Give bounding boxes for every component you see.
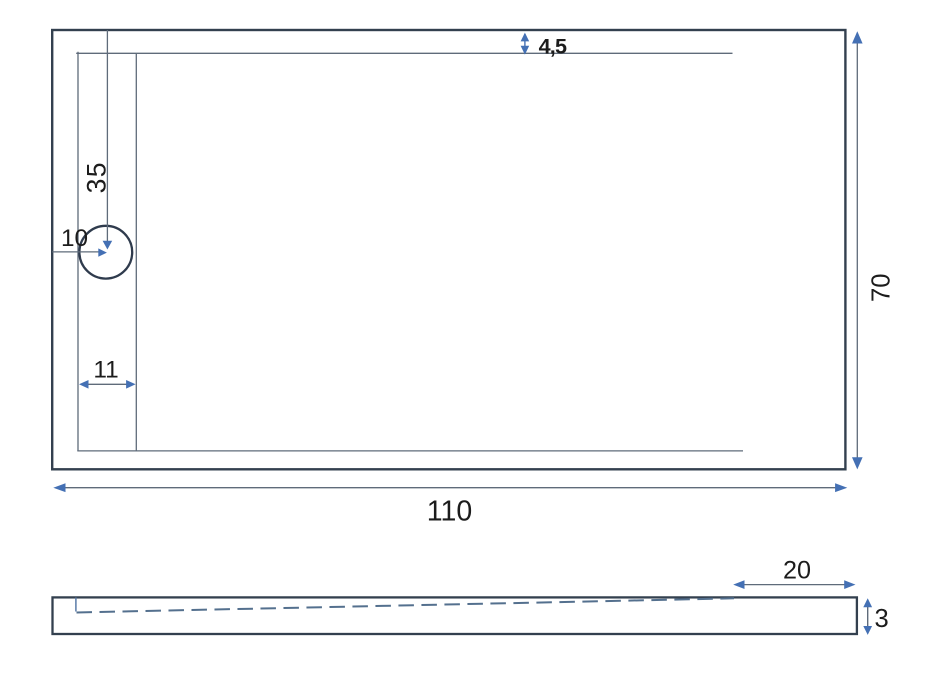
svg-text:70: 70: [868, 274, 896, 302]
svg-text:20: 20: [783, 556, 811, 584]
svg-text:3: 3: [875, 605, 889, 633]
svg-text:11: 11: [93, 357, 118, 384]
svg-text:4,5: 4,5: [539, 33, 567, 58]
svg-text:35: 35: [82, 161, 112, 193]
svg-text:110: 110: [427, 496, 472, 528]
svg-text:10: 10: [61, 225, 88, 252]
